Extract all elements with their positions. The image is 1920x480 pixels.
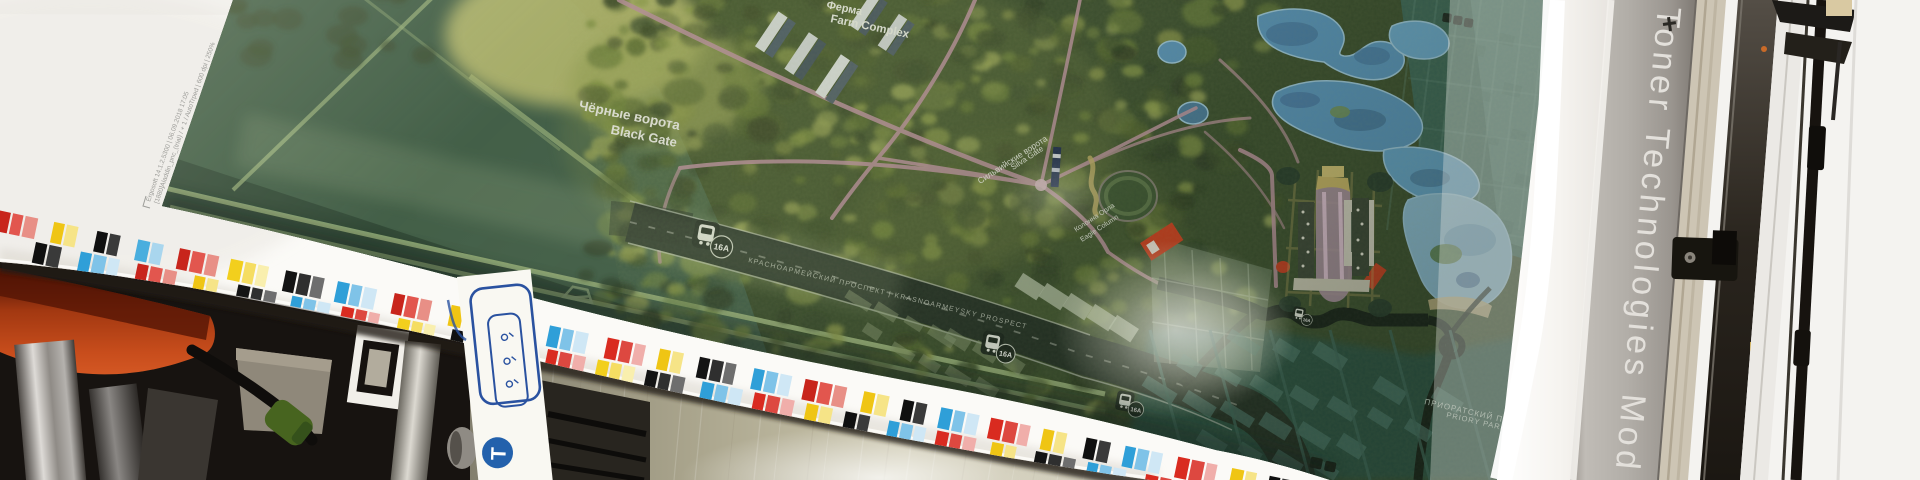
- svg-text:T: T: [487, 447, 510, 461]
